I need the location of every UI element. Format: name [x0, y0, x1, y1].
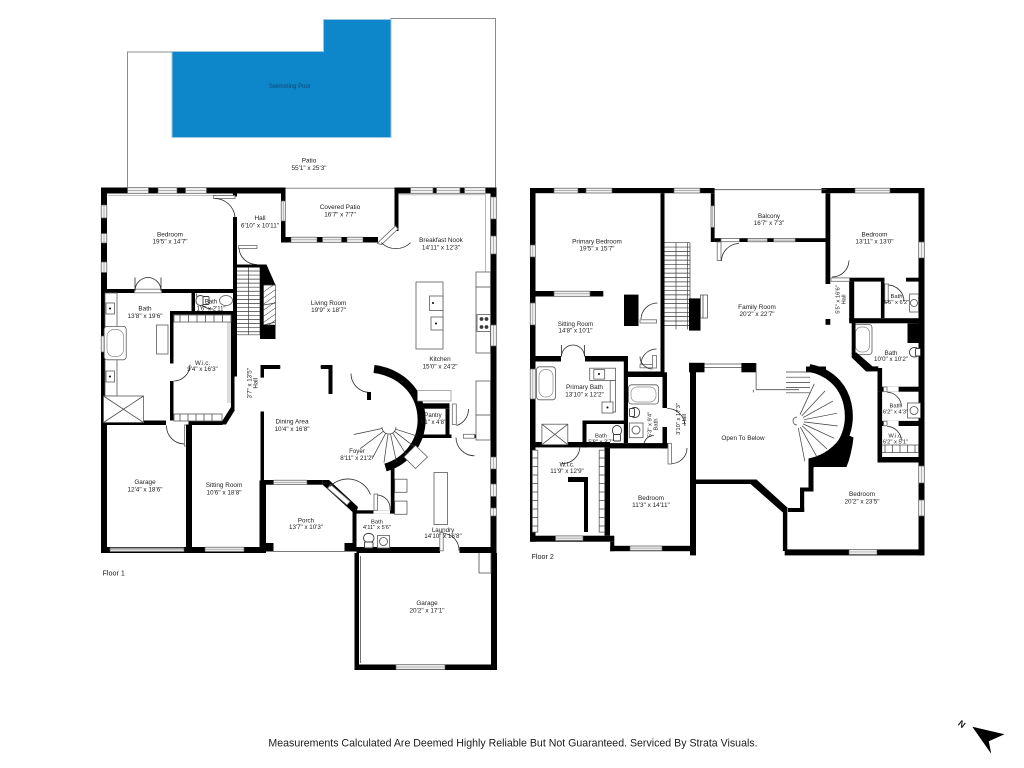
svg-text:1'6" x 2'11": 1'6" x 2'11" — [196, 306, 225, 312]
svg-text:Patio: Patio — [302, 158, 317, 165]
svg-text:Garage: Garage — [416, 600, 438, 607]
svg-text:14'8" x 10'1": 14'8" x 10'1" — [559, 328, 593, 335]
svg-text:16'7" x 7'3": 16'7" x 7'3" — [754, 220, 785, 227]
svg-text:Hall: Hall — [842, 295, 848, 305]
svg-text:20'2" x 22'7": 20'2" x 22'7" — [739, 311, 774, 318]
svg-text:Breakfast Nook: Breakfast Nook — [419, 237, 463, 244]
svg-text:20'2" x 23'5": 20'2" x 23'5" — [844, 498, 879, 505]
svg-text:Bath: Bath — [595, 433, 607, 439]
svg-text:Floor 2: Floor 2 — [532, 552, 554, 561]
svg-text:13'11" x 13'0": 13'11" x 13'0" — [855, 239, 893, 246]
svg-text:Covered Patio: Covered Patio — [320, 204, 361, 211]
svg-text:Hall: Hall — [253, 378, 260, 389]
svg-text:55'1" x 25'3": 55'1" x 25'3" — [291, 165, 326, 172]
svg-text:Swimming Pool: Swimming Pool — [269, 84, 310, 90]
svg-text:Bedroom: Bedroom — [157, 231, 183, 238]
svg-text:19'5" x 14'7": 19'5" x 14'7" — [152, 239, 187, 246]
svg-text:Bath: Bath — [138, 306, 152, 313]
svg-text:4'11" x 5'6": 4'11" x 5'6" — [363, 525, 391, 531]
svg-text:19'9" x 18'7": 19'9" x 18'7" — [311, 307, 346, 314]
svg-text:Living Room: Living Room — [311, 300, 347, 307]
svg-text:10'6" x 18'8": 10'6" x 18'8" — [206, 489, 241, 496]
svg-text:4'1" x 4'8": 4'1" x 4'8" — [420, 420, 446, 426]
svg-text:Dining Area: Dining Area — [275, 419, 308, 426]
svg-text:Garage: Garage — [134, 479, 156, 486]
svg-text:Family Room: Family Room — [738, 304, 776, 311]
svg-text:Hall: Hall — [682, 414, 688, 424]
svg-text:6'2" x 5'1": 6'2" x 5'1" — [883, 439, 908, 445]
svg-text:Pantry: Pantry — [424, 413, 441, 419]
svg-text:Hall: Hall — [254, 215, 265, 222]
svg-text:5'5" x 6'2": 5'5" x 6'2" — [884, 300, 909, 306]
svg-text:9'4" x 16'3": 9'4" x 16'3" — [187, 366, 218, 373]
svg-text:19'5" x 15'7": 19'5" x 15'7" — [579, 246, 614, 253]
svg-text:14'10" x 16'8": 14'10" x 16'8" — [424, 533, 461, 540]
svg-text:13'10" x 12'2": 13'10" x 12'2" — [565, 392, 604, 399]
svg-text:Measurements Calculated Are De: Measurements Calculated Are Deemed Highl… — [268, 738, 757, 750]
svg-text:14'11" x 12'3": 14'11" x 12'3" — [422, 244, 460, 251]
svg-text:Bath: Bath — [205, 299, 217, 305]
svg-text:Kitchen: Kitchen — [429, 356, 451, 363]
svg-text:20'2" x 17'1": 20'2" x 17'1" — [409, 607, 444, 614]
svg-text:13'7" x 10'3": 13'7" x 10'3" — [289, 524, 323, 531]
svg-text:Floor 1: Floor 1 — [103, 569, 125, 578]
svg-text:13'8" x 19'6": 13'8" x 19'6" — [127, 313, 162, 320]
svg-text:5'8" x 3'7": 5'8" x 3'7" — [588, 440, 613, 446]
svg-text:11'3" x 14'11": 11'3" x 14'11" — [632, 502, 670, 509]
svg-text:Primary Bath: Primary Bath — [566, 384, 603, 391]
svg-text:Sitting Room: Sitting Room — [206, 482, 243, 489]
svg-text:6'10" x 10'11": 6'10" x 10'11" — [241, 223, 279, 230]
svg-text:11'9" x 12'9": 11'9" x 12'9" — [550, 468, 583, 475]
svg-text:Primary Bedroom: Primary Bedroom — [572, 238, 622, 245]
svg-text:8'11" x 21'2": 8'11" x 21'2" — [340, 455, 373, 462]
svg-text:10'0" x 10'2": 10'0" x 10'2" — [874, 356, 908, 363]
svg-text:10'4" x 16'8": 10'4" x 16'8" — [274, 426, 309, 433]
svg-text:16'7" x 7'7": 16'7" x 7'7" — [324, 212, 356, 219]
svg-text:Open To Below: Open To Below — [721, 435, 765, 442]
svg-text:6'2" x 4'3": 6'2" x 4'3" — [883, 409, 908, 415]
svg-text:12'4" x 18'6": 12'4" x 18'6" — [127, 487, 162, 494]
svg-text:Bath: Bath — [654, 419, 660, 431]
svg-text:Bedroom: Bedroom — [862, 231, 888, 238]
svg-text:Bedroom: Bedroom — [638, 495, 664, 502]
svg-text:Bedroom: Bedroom — [849, 491, 875, 498]
svg-text:15'0" x 24'2": 15'0" x 24'2" — [422, 364, 457, 371]
